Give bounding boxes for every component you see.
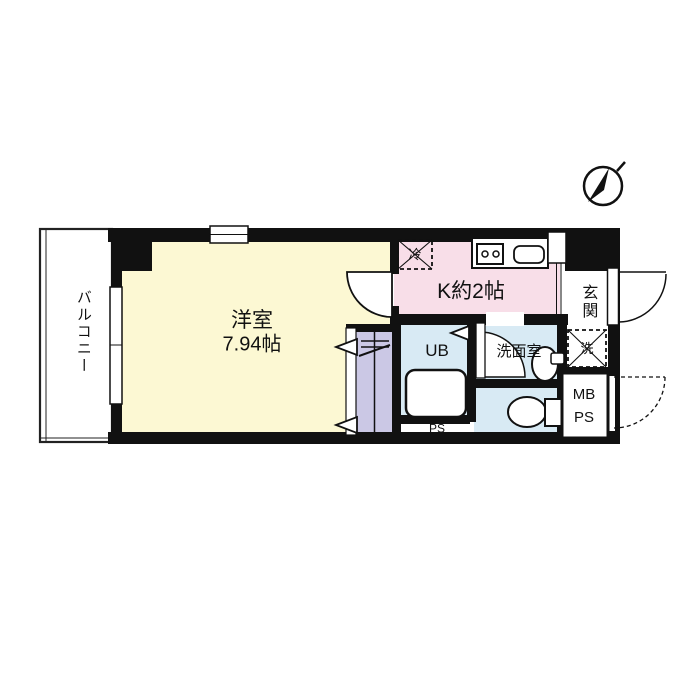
washroom-label: 洗面室	[496, 344, 541, 360]
living-room-label: 洋室	[231, 310, 273, 332]
meter-box	[562, 373, 608, 438]
pipe-space-label: PS	[429, 423, 445, 436]
washroom-door-gap	[486, 312, 524, 326]
meter-box-label-line2: PS	[574, 410, 594, 426]
living-room-size: 7.94帖	[223, 335, 282, 356]
entrance-door-leaf	[608, 268, 619, 325]
refrigerator-label: 冷	[408, 248, 421, 262]
kitchen-cabinet	[548, 232, 566, 263]
entrance-label: 玄関	[579, 284, 596, 320]
bathtub-icon	[406, 370, 466, 417]
meter-box-label-line1: MB	[573, 387, 596, 403]
floor-plan: バルコニー 洋室 7.94帖 K約2帖 UB 洗面室 玄関 PS MB PS 冷…	[0, 0, 700, 700]
toilet-icon	[508, 397, 546, 427]
kitchen-sink-icon	[514, 246, 544, 263]
balcony-label: バルコニー	[75, 290, 91, 375]
unit-bath-label: UB	[425, 342, 449, 360]
kitchen-label: K約2帖	[437, 281, 505, 303]
washing-machine-label: 洗	[580, 342, 593, 356]
compass-north-icon	[584, 162, 625, 205]
washroom-door-leaf	[476, 323, 485, 378]
faucet-icon	[551, 353, 564, 364]
wall-corner-top-right	[565, 228, 613, 271]
wall-washroom-toilet	[474, 379, 566, 388]
entrance-door-swing-arc	[619, 274, 666, 322]
floor-plan-drawing	[0, 0, 700, 700]
meter-box-door-swing-arc	[614, 377, 665, 428]
